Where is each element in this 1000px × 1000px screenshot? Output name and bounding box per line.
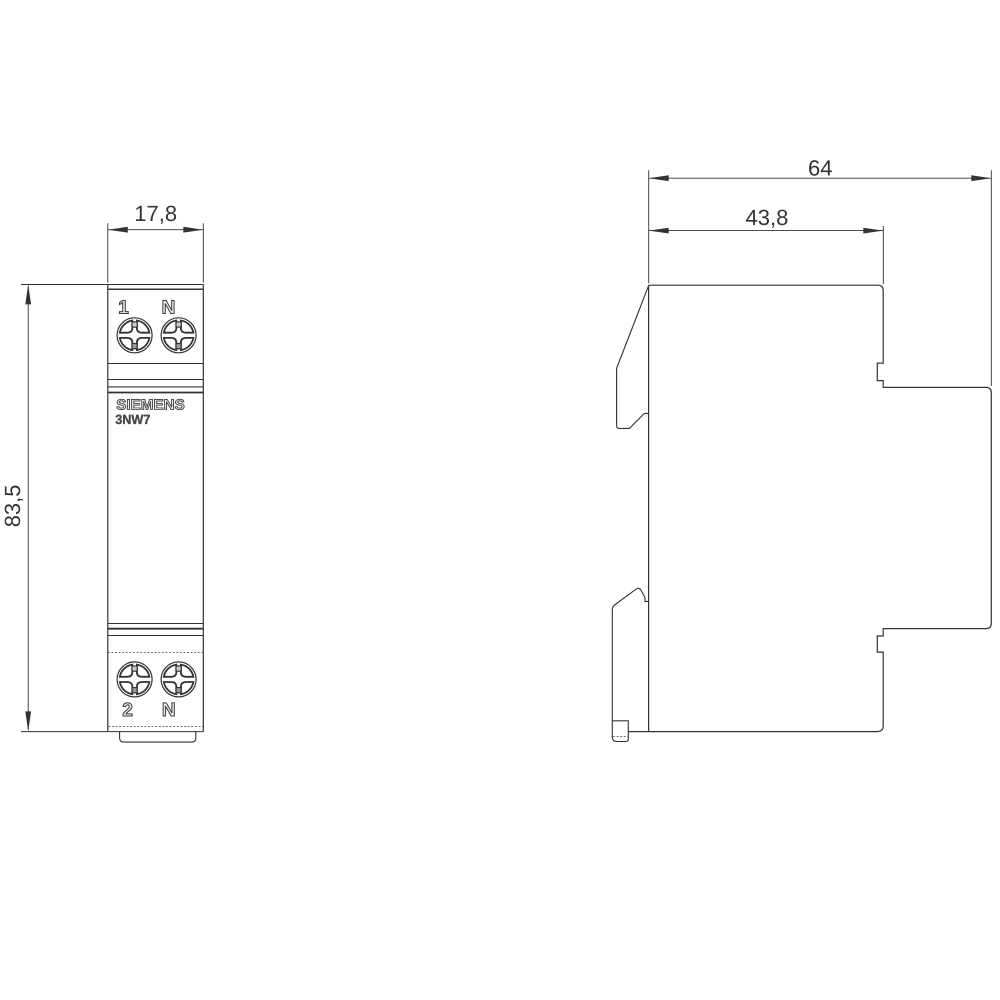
svg-text:N: N — [162, 298, 176, 319]
svg-text:3NW7: 3NW7 — [115, 412, 150, 427]
svg-text:N: N — [162, 700, 176, 721]
svg-text:17,8: 17,8 — [134, 201, 177, 226]
svg-text:83,5: 83,5 — [0, 484, 25, 527]
svg-text:64: 64 — [808, 156, 832, 181]
svg-text:2: 2 — [122, 700, 133, 721]
svg-text:43,8: 43,8 — [745, 205, 788, 230]
svg-text:1: 1 — [118, 298, 129, 319]
